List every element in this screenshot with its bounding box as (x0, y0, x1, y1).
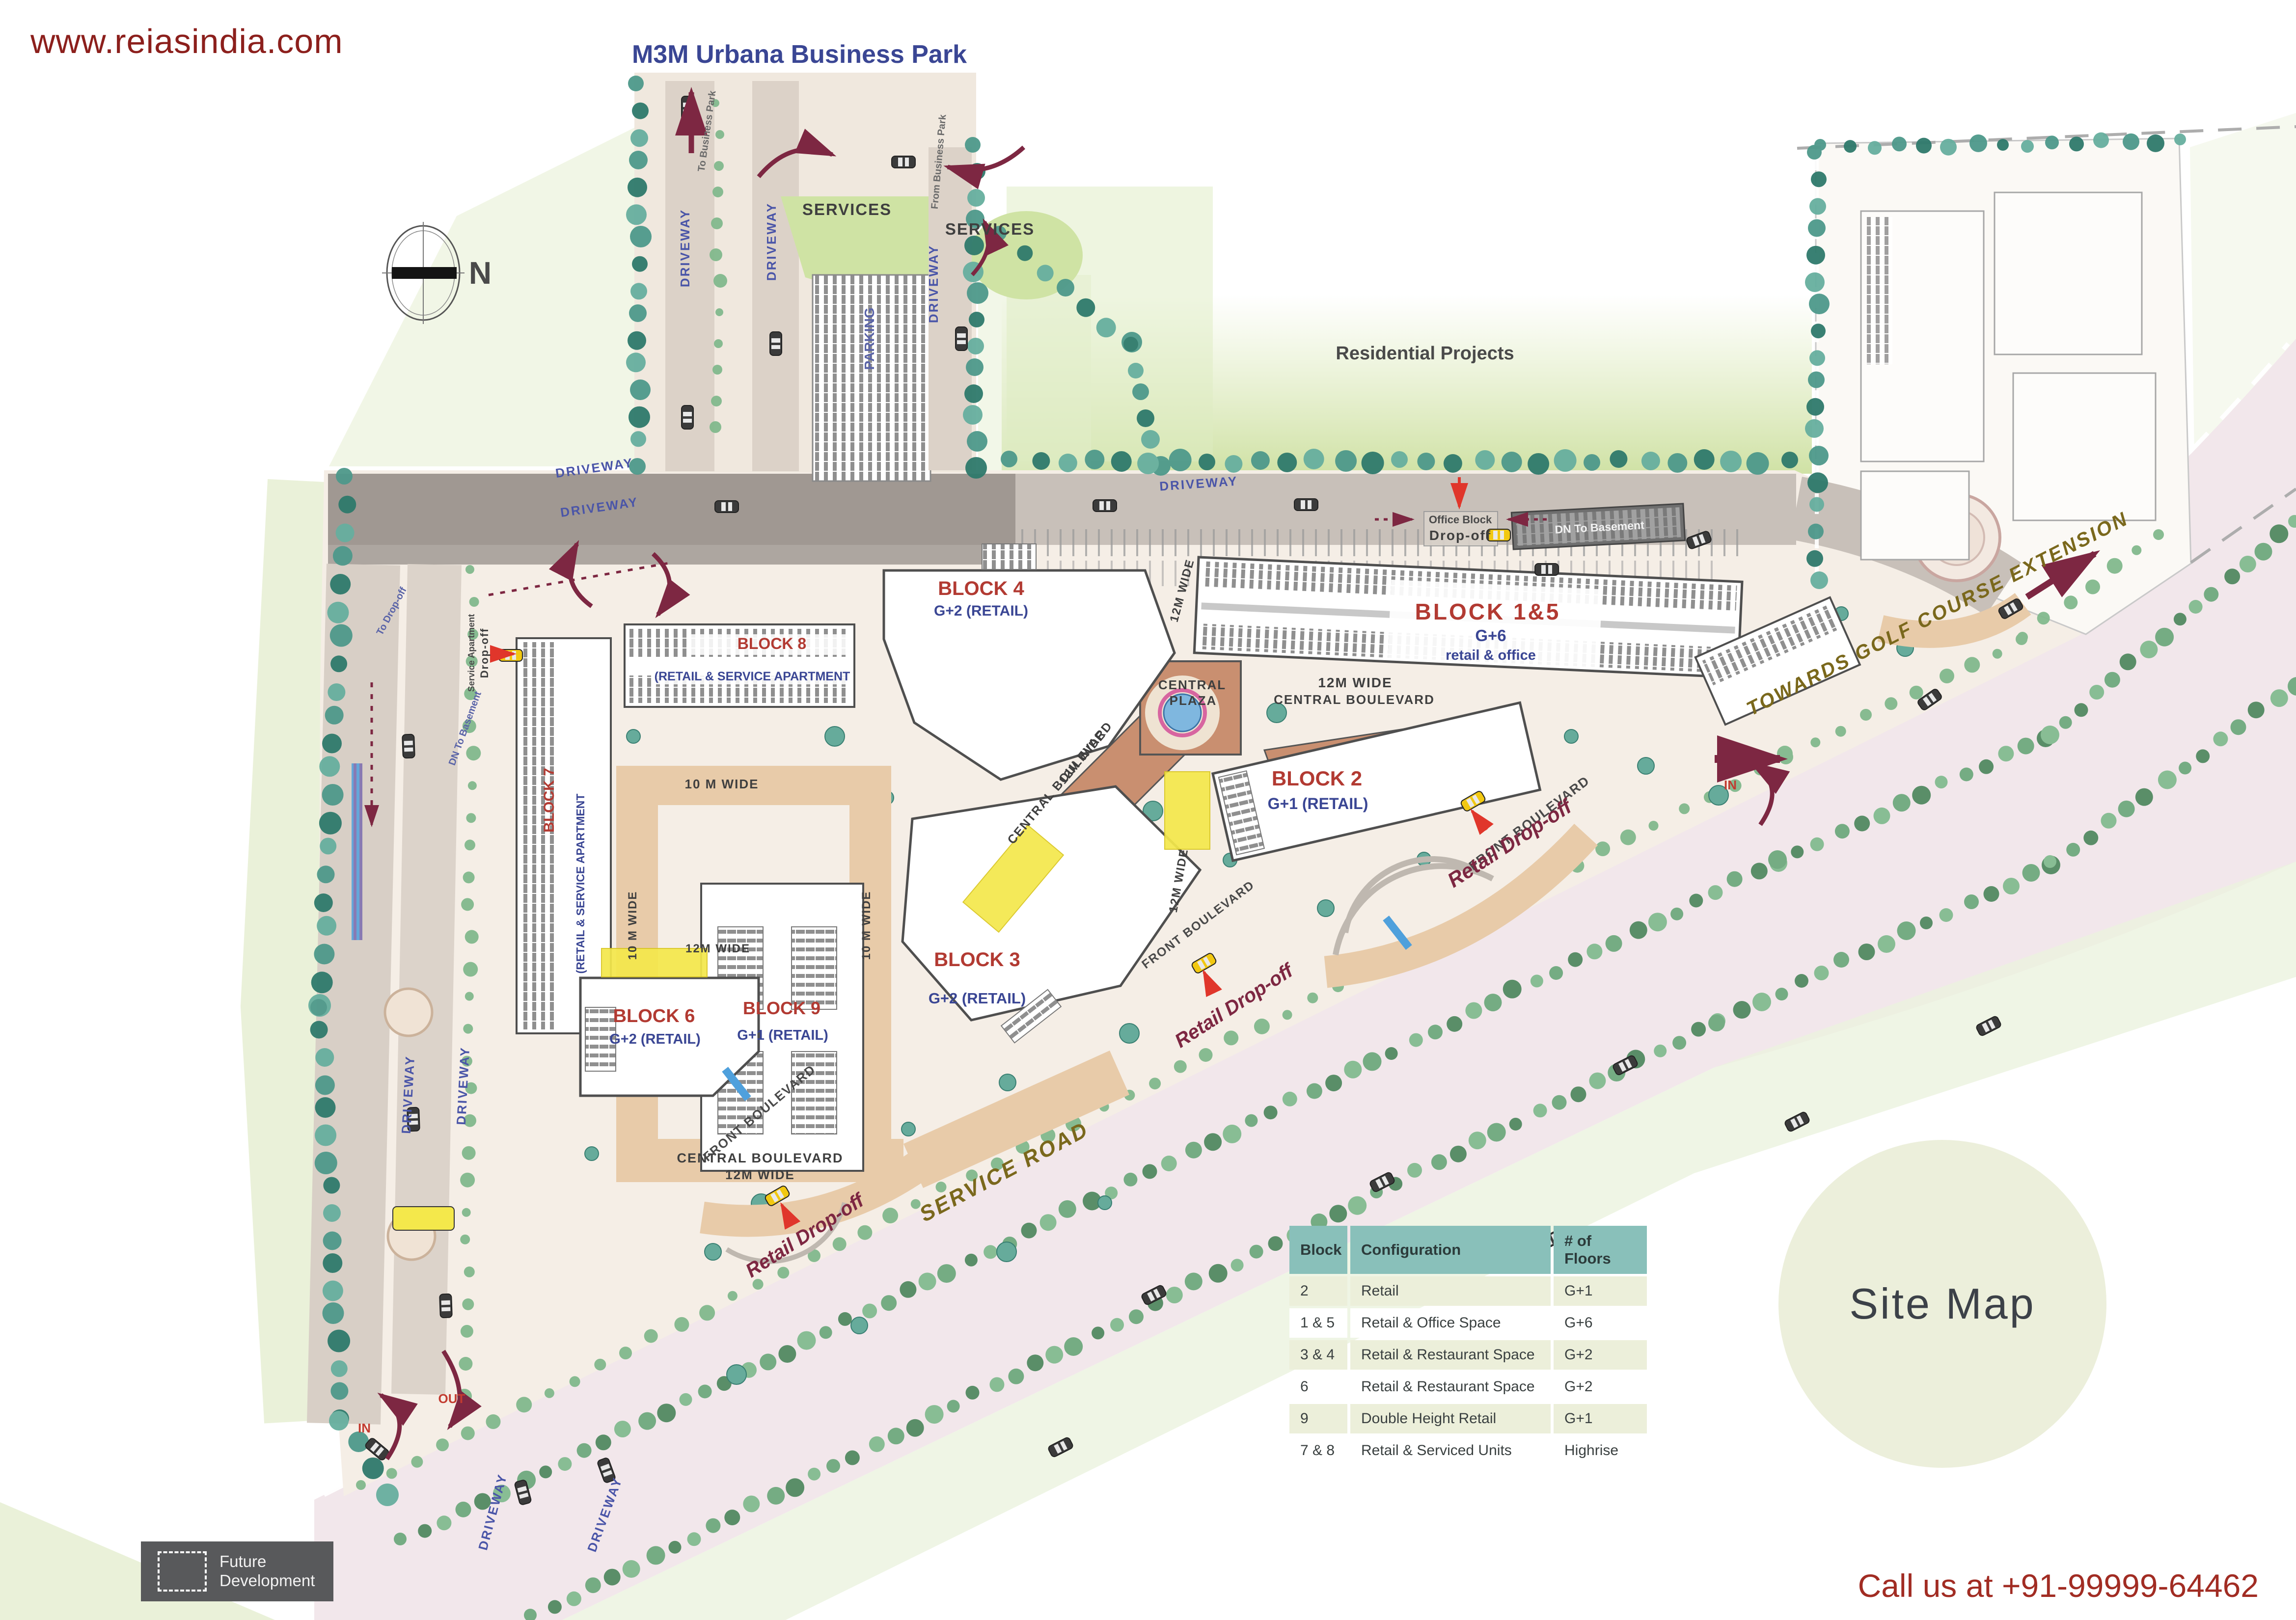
office-dropoff-label: Drop-off (1429, 528, 1491, 543)
table-row: 1 & 5 Retail & Office Space G+6 (1289, 1308, 1647, 1338)
block-2-label: BLOCK 2 (1272, 767, 1362, 790)
col-floors: # of Floors (1554, 1226, 1647, 1274)
service-apartment-label: Service Apartment (466, 614, 476, 692)
cell-floors: G+1 (1554, 1404, 1647, 1433)
cell-block: 1 & 5 (1289, 1308, 1347, 1338)
site-map-badge-text: Site Map (1849, 1279, 2035, 1329)
site-map-page: M3M Urbana Business Park N SERVICES SERV… (0, 0, 2296, 1620)
col-block: Block (1289, 1226, 1347, 1274)
out-label: OUT (438, 1391, 465, 1406)
boulevard-width-label: 12M WIDE (1318, 675, 1392, 690)
in-label: IN (1724, 778, 1737, 792)
cell-block: 2 (1289, 1276, 1347, 1306)
cell-config: Double Height Retail (1350, 1404, 1551, 1433)
boulevard-width-label: 12M WIDE (685, 942, 750, 955)
cell-block: 9 (1289, 1404, 1347, 1433)
walk-width-label: 10 M WIDE (860, 891, 873, 960)
driveway-label: DRIVEWAY (926, 244, 941, 323)
cell-block: 3 & 4 (1289, 1340, 1347, 1370)
cell-floors: G+6 (1554, 1308, 1647, 1338)
table-row: 6 Retail & Restaurant Space G+2 (1289, 1372, 1647, 1402)
block-9-label: BLOCK 9 (743, 998, 820, 1018)
central-plaza-label: PLAZA (1170, 693, 1217, 708)
config-table: Block Configuration # of Floors 2 Retail… (1286, 1223, 1650, 1468)
table-row: 2 Retail G+1 (1289, 1276, 1647, 1306)
parking-label: PARKING (862, 307, 877, 370)
block-7-use: (RETAIL & SERVICE APARTMENT (574, 794, 587, 974)
block-1-5-use: retail & office (1446, 648, 1536, 663)
cell-floors: Highrise (1554, 1436, 1647, 1465)
block-6-floors: G+2 (RETAIL) (609, 1031, 701, 1047)
legend-line1: Future (219, 1552, 315, 1571)
block-3-floors: G+2 (RETAIL) (929, 990, 1026, 1007)
cell-config: Retail & Serviced Units (1350, 1436, 1551, 1465)
cell-floors: G+2 (1554, 1340, 1647, 1370)
cell-block: 6 (1289, 1372, 1347, 1402)
table-header-row: Block Configuration # of Floors (1289, 1226, 1647, 1274)
block-4-floors: G+2 (RETAIL) (934, 603, 1028, 619)
phone-cta[interactable]: Call us at +91-99999-64462 (1561, 1567, 2259, 1604)
compass-n-label: N (469, 255, 492, 291)
cell-config: Retail & Restaurant Space (1350, 1340, 1551, 1370)
central-plaza-label: CENTRAL (1158, 677, 1226, 692)
site-map-badge: Site Map (1778, 1140, 2106, 1468)
block-4-label: BLOCK 4 (938, 578, 1024, 599)
block-7-label: BLOCK 7 (541, 768, 557, 833)
block-8-use: (RETAIL & SERVICE APARTMENT (655, 670, 850, 683)
office-block-label: Office Block (1429, 513, 1492, 526)
block-8-label: BLOCK 8 (738, 635, 806, 652)
cell-config: Retail & Restaurant Space (1350, 1372, 1551, 1402)
future-development-legend: Future Development (141, 1541, 333, 1601)
residential-label: Residential Projects (1336, 343, 1514, 364)
cell-floors: G+1 (1554, 1276, 1647, 1306)
website-url[interactable]: www.reiasindia.com (30, 22, 343, 61)
boulevard-width-label: 12M WIDE (725, 1167, 795, 1182)
block-2-floors: G+1 (RETAIL) (1268, 795, 1368, 812)
central-boulevard-label: CENTRAL BOULEVARD (1274, 692, 1435, 707)
cell-config: Retail & Office Space (1350, 1308, 1551, 1338)
table-row: 3 & 4 Retail & Restaurant Space G+2 (1289, 1340, 1647, 1370)
block-9-floors: G+1 (RETAIL) (737, 1027, 828, 1043)
service-apartment-dropoff-label: Drop-off (478, 628, 491, 678)
walk-width-label: 10 M WIDE (685, 777, 759, 791)
walk-width-label: 10 M WIDE (626, 891, 639, 960)
cell-block: 7 & 8 (1289, 1436, 1347, 1465)
col-configuration: Configuration (1350, 1226, 1551, 1274)
driveway-label: DRIVEWAY (678, 209, 692, 287)
map-title: M3M Urbana Business Park (632, 40, 967, 69)
cell-config: Retail (1350, 1276, 1551, 1306)
in-label: IN (358, 1421, 371, 1435)
cell-floors: G+2 (1554, 1372, 1647, 1402)
driveway-label: DRIVEWAY (764, 202, 779, 281)
legend-line2: Development (219, 1571, 315, 1591)
table-row: 7 & 8 Retail & Serviced Units Highrise (1289, 1436, 1647, 1465)
block-1-5-label: BLOCK 1&5 (1415, 599, 1561, 624)
block-3-label: BLOCK 3 (934, 949, 1020, 971)
block-1-5-floors: G+6 (1475, 626, 1506, 645)
services-label: SERVICES (802, 200, 892, 218)
services-label: SERVICES (945, 220, 1035, 238)
future-development-swatch (158, 1551, 207, 1592)
block-6-label: BLOCK 6 (613, 1006, 695, 1026)
table-row: 9 Double Height Retail G+1 (1289, 1404, 1647, 1433)
